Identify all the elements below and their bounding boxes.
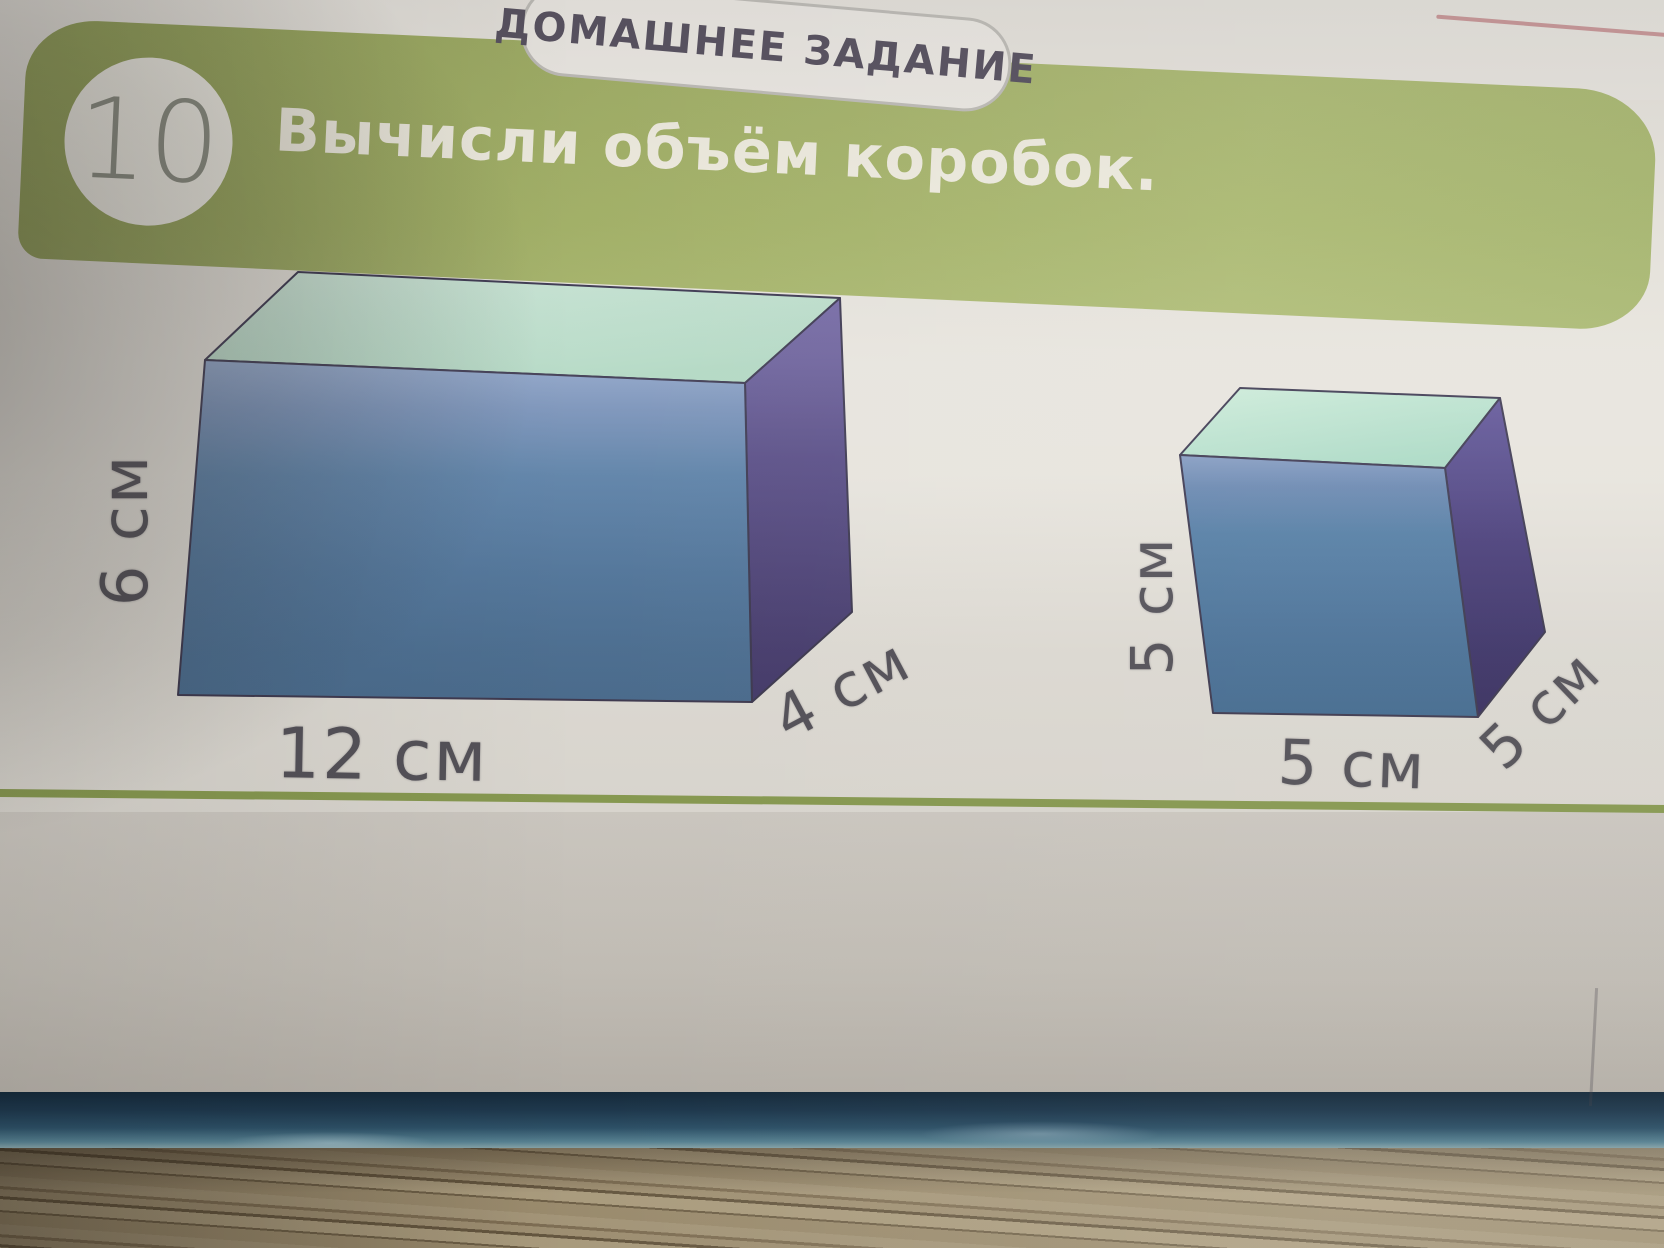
cube-box-top-face [1180, 388, 1500, 468]
cube-box-height-label: 5 см [1117, 506, 1187, 706]
cube-box-front-face [1180, 455, 1478, 717]
large-box-front-face [178, 360, 752, 702]
large-box-height-label: 6 см [86, 420, 166, 640]
boxes-illustration [0, 0, 1664, 1248]
textbook-page-photo: { "header": { "tab_label": "ДОМАШНЕЕ ЗАД… [0, 0, 1664, 1248]
cube-box-width-label: 5 см [1251, 726, 1453, 803]
large-box-width-label: 12 см [251, 708, 513, 803]
